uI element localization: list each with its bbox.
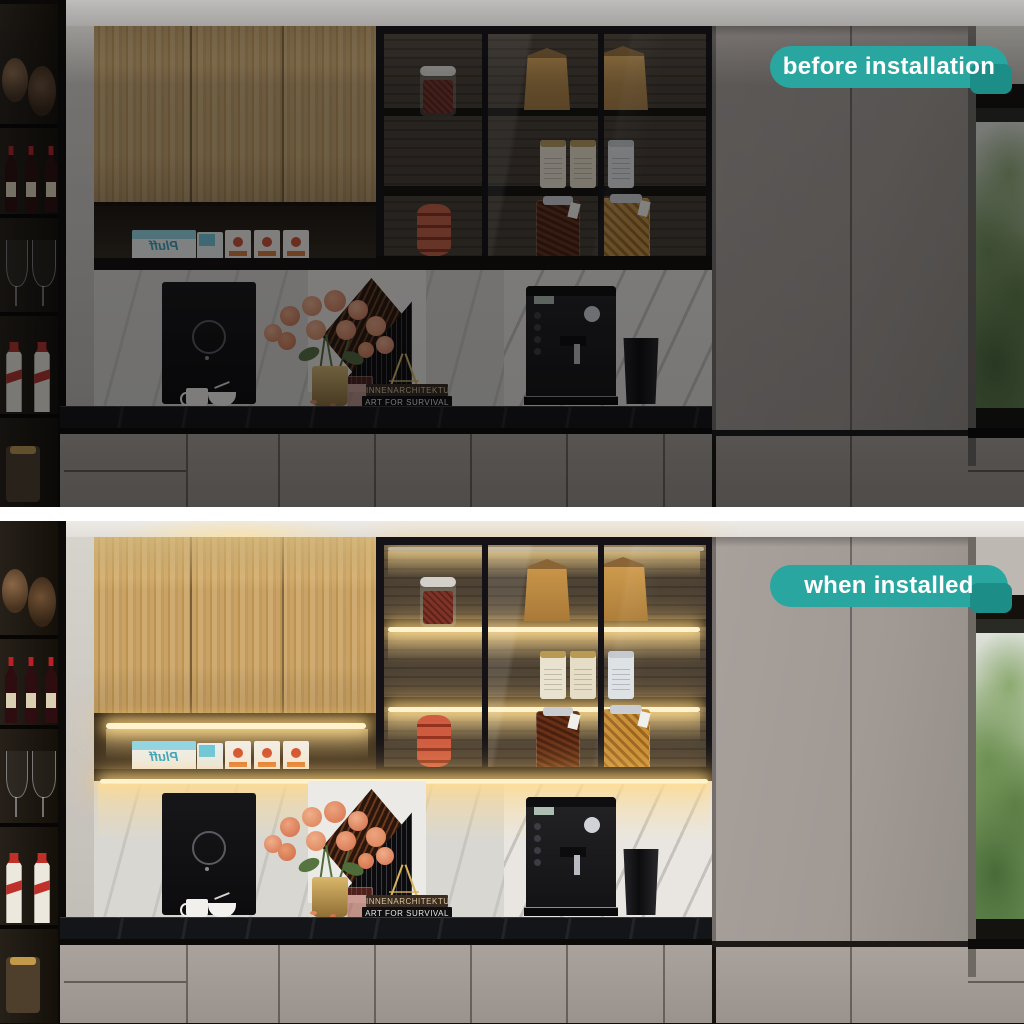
candy-jar [420, 581, 456, 627]
tomato-graphic [262, 237, 272, 247]
before-panel: Pluff [0, 0, 1024, 507]
lower-cabinet-seam [186, 945, 188, 1023]
rose [348, 300, 368, 320]
window-sill [968, 428, 1024, 438]
flower-leaves [341, 349, 366, 368]
baijiu-bottle [31, 342, 53, 412]
black-tumbler [622, 849, 660, 915]
lower-cabinet-seam [278, 945, 280, 1023]
paper-bag [524, 48, 570, 110]
canister [540, 140, 566, 188]
unit-shelf-board [376, 108, 712, 116]
tomato-box [254, 741, 280, 771]
wine-label [46, 182, 56, 197]
drawer-line [968, 470, 1024, 472]
rose [278, 332, 296, 350]
after-panel: Pluff [0, 521, 1024, 1024]
machine-button [534, 336, 541, 343]
display-unit-frame [376, 537, 384, 781]
window-glass-foliage [976, 619, 1024, 919]
baijiu-bottle [3, 342, 25, 412]
wine-bottle [3, 146, 19, 212]
rose [324, 801, 346, 823]
storage-jar [6, 957, 40, 1013]
tall-cabinet-bottom-band [712, 430, 968, 436]
pyramid-base [383, 402, 425, 404]
flower-vase [312, 877, 348, 917]
window-roller-band [976, 619, 1024, 633]
machine-button [534, 823, 541, 830]
baijiu-label [28, 368, 56, 385]
bowl [208, 392, 236, 406]
wine-glass [32, 240, 56, 287]
cabinet-door-seam [282, 537, 284, 717]
lower-cabinets [60, 434, 1024, 507]
canister-label [544, 154, 562, 182]
candy-jar [420, 70, 456, 116]
tomato-box-band [287, 762, 305, 767]
window-roller-band [976, 108, 1024, 122]
book-title: INNENARCHITEKTUR [366, 385, 448, 396]
jar-tag [637, 200, 650, 217]
gold-pyramid-ornament [383, 350, 425, 406]
wine-shelf [0, 414, 58, 418]
backsplash-marble-dark [504, 270, 714, 410]
counter-front-shadow [60, 428, 1024, 435]
machine-button [534, 847, 541, 854]
lower-cabinet-seam [663, 434, 665, 507]
panel-divider [0, 507, 1024, 521]
lower-cabinets [60, 945, 1024, 1023]
rose [306, 320, 326, 340]
lower-cabinet-seam [712, 434, 716, 507]
jar-tag [567, 202, 580, 219]
machine-button [534, 324, 541, 331]
rose [280, 817, 300, 837]
serving-board [162, 282, 256, 404]
milk-box-band [132, 230, 196, 239]
wine-shelf [0, 124, 58, 128]
rose [264, 324, 282, 342]
tomato-box-band [258, 251, 276, 256]
glass-cup [347, 376, 373, 408]
wine-glass-stem [42, 797, 44, 817]
unit-shelf-board [376, 186, 712, 196]
machine-button [534, 312, 541, 319]
flower-vase [312, 366, 348, 406]
decor-ball [28, 66, 56, 116]
canister-lid [608, 140, 634, 147]
countertop [60, 406, 712, 429]
wine-shelf [0, 925, 58, 929]
rose [358, 853, 374, 869]
cabinet-door-seam [190, 537, 192, 717]
wine-label [6, 693, 16, 708]
drawer-line [64, 981, 186, 983]
machine-group-head [560, 847, 586, 857]
milk-box: Pluff [132, 230, 196, 260]
wine-bottle [23, 146, 39, 212]
mug-handle [180, 903, 192, 917]
tomato-box [283, 741, 309, 771]
tall-cabinet-top-shadow [712, 26, 968, 36]
machine-portafilter [574, 344, 580, 364]
display-unit-frame [482, 26, 488, 270]
board-dot [205, 867, 209, 871]
wood-cabinet-bottom-edge [94, 202, 378, 207]
wine-shelf [0, 214, 58, 218]
wall-art-bronze [322, 278, 412, 384]
tall-cabinet-left-edge [712, 26, 716, 436]
unit-bottom-board [376, 256, 714, 270]
decor-ball [2, 569, 28, 613]
machine-drip-tray [524, 396, 618, 405]
milk-box-label: Pluff [134, 749, 194, 769]
tomato-box-band [229, 762, 247, 767]
rose [336, 831, 356, 851]
wine-shelf [0, 312, 58, 316]
wall-panel [66, 537, 94, 929]
rose [306, 831, 326, 851]
lower-cabinet-seam [850, 945, 852, 1023]
machine-dial [584, 306, 600, 322]
canister-label [574, 154, 592, 182]
tomato-box-band [229, 251, 247, 256]
wine-glass-stem [15, 797, 17, 817]
book-title: INNENARCHITEKTUR [366, 896, 448, 907]
window-bottom-band [976, 919, 1024, 939]
machine-top-vent [526, 797, 616, 807]
flower-stems [332, 339, 350, 389]
jar-lid [610, 194, 642, 203]
wine-glass-stem [42, 286, 44, 306]
tall-cabinet-bottom-band [712, 941, 968, 947]
lower-cabinet-seam [470, 434, 472, 507]
display-unit-frame [706, 26, 714, 270]
board-ring [192, 320, 226, 354]
open-shelf [94, 206, 378, 258]
tomato-graphic [262, 748, 272, 758]
infusion-jar [602, 198, 650, 260]
wine-label [6, 182, 16, 197]
rose [302, 296, 322, 316]
pyramid-crossbar [389, 891, 419, 893]
tomato-box-band [258, 762, 276, 767]
tomato-box [225, 741, 251, 771]
lower-cabinet-seam [186, 434, 188, 507]
machine-dial [584, 817, 600, 833]
wine-cabinet-interior [0, 4, 58, 507]
book-stack-top: INNENARCHITEKTUR [366, 384, 448, 396]
before-badge: before installation [770, 46, 1008, 88]
display-unit-frame [376, 26, 384, 270]
rose [348, 811, 368, 831]
lower-cabinet-seam [470, 945, 472, 1023]
mug-handle [180, 392, 192, 406]
wine-label [46, 693, 56, 708]
window-bottom-band [976, 408, 1024, 428]
glass-door-sheen [488, 545, 706, 769]
machine-button [534, 859, 541, 866]
wine-cabinet [0, 0, 66, 507]
wall-art-panel [308, 270, 426, 392]
black-tumbler [622, 338, 660, 404]
jar-lid [10, 957, 36, 965]
rose [366, 827, 386, 847]
machine-screen [534, 807, 554, 815]
rose [366, 316, 386, 336]
decor-ball [28, 577, 56, 627]
machine-group-head [560, 336, 586, 346]
lower-cabinet-seam [374, 434, 376, 507]
window-sill [968, 939, 1024, 949]
ceiling [0, 0, 1024, 27]
storage-jar [6, 446, 40, 502]
coil-vase [417, 204, 451, 256]
machine-button [534, 835, 541, 842]
fallen-petal [310, 400, 317, 404]
coil-vase [417, 715, 451, 767]
display-unit-frame [376, 537, 714, 545]
wine-label [26, 182, 36, 197]
tomato-graphic [233, 748, 243, 758]
wine-bottle [43, 146, 59, 212]
milk-box [197, 743, 223, 771]
flower-leaves [297, 344, 322, 364]
jar-lid [420, 66, 456, 76]
infusion-jar [536, 200, 580, 260]
jar-contents [423, 80, 453, 113]
coffee-machine [526, 797, 616, 915]
display-unit-frame [376, 26, 714, 34]
canister [570, 140, 596, 188]
tall-cabinet-left-edge [712, 537, 716, 947]
flower-leaves [297, 855, 322, 875]
wall-art-stripes [322, 278, 412, 384]
cabinet-door-seam [190, 26, 192, 206]
machine-top-vent [526, 286, 616, 296]
display-unit-back [382, 32, 706, 266]
lower-cabinet-seam [566, 945, 568, 1023]
rose [280, 306, 300, 326]
machine-button [534, 348, 541, 355]
milk-box [197, 232, 223, 260]
pyramid-crossbar [389, 380, 419, 382]
rose [302, 807, 322, 827]
rose [376, 336, 394, 354]
book-title: ART FOR SURVIVAL [362, 397, 452, 408]
book-stack-bottom: ART FOR SURVIVAL [362, 396, 452, 408]
fallen-petal [310, 911, 317, 915]
drawer-line [64, 470, 186, 472]
rose [336, 320, 356, 340]
shelf-board [94, 258, 384, 270]
coffee-machine [526, 286, 616, 404]
mug [186, 388, 208, 406]
lower-cabinet-seam [712, 945, 716, 1023]
wine-glass [32, 751, 56, 798]
serving-board [162, 793, 256, 915]
flower-bouquet [258, 290, 400, 408]
book-stack-top: INNENARCHITEKTUR [366, 895, 448, 907]
countertop [60, 917, 712, 940]
milk-box-band [199, 234, 215, 246]
tall-cabinet-top-shadow [712, 537, 968, 547]
paper-bag [598, 46, 648, 110]
drawer-line [968, 981, 1024, 983]
wine-shelf [0, 725, 58, 729]
jar-lid [543, 196, 573, 205]
lower-cabinet-seam [278, 434, 280, 507]
canister-label [612, 154, 630, 182]
machine-screen [534, 296, 554, 304]
flower-stems [325, 334, 337, 389]
spoon [214, 381, 230, 389]
lower-cabinet-seam [663, 945, 665, 1023]
rose [324, 290, 346, 312]
machine-drip-tray [524, 907, 618, 916]
glass-door-sheen [488, 34, 706, 258]
lower-cabinet-seam [850, 434, 852, 507]
board-dot [205, 356, 209, 360]
lower-cabinet-seam [374, 945, 376, 1023]
tomato-box-band [287, 251, 305, 256]
ceiling [0, 521, 1024, 538]
tomato-graphic [291, 237, 301, 247]
wine-cabinet [0, 521, 66, 1023]
tomato-graphic [291, 748, 301, 758]
jar-contents [423, 591, 453, 624]
tomato-box [225, 230, 251, 260]
milk-box-band [199, 745, 215, 757]
flower-stems [316, 338, 325, 390]
machine-portafilter [574, 855, 580, 875]
after-badge: when installed [770, 565, 1008, 607]
window-glass-foliage [976, 108, 1024, 408]
pyramid-edge [382, 353, 403, 406]
wine-label [26, 693, 36, 708]
wine-glass-stem [15, 286, 17, 306]
rose [278, 843, 296, 861]
backsplash-marble [94, 270, 504, 410]
wall-panel [66, 26, 94, 418]
tomato-box [254, 230, 280, 260]
pyramid-edge [404, 353, 425, 406]
wine-shelf [0, 823, 58, 827]
wine-shelf [0, 635, 58, 639]
wine-cabinet-frame [58, 0, 66, 507]
canister-lid [570, 140, 596, 147]
cabinet-door-seam [282, 26, 284, 206]
tomato-graphic [233, 237, 243, 247]
board-ring [192, 831, 226, 865]
wine-glass [6, 240, 28, 287]
baijiu-label [0, 368, 28, 385]
jar-lid [420, 577, 456, 587]
before-badge-label: before installation [783, 53, 995, 81]
milk-box-label: Pluff [134, 238, 194, 258]
tomato-box [283, 230, 309, 260]
under-cabinet-led-strip [106, 723, 366, 729]
fallen-petal [330, 403, 336, 407]
book-tray [358, 408, 456, 412]
milk-box: Pluff [132, 741, 196, 771]
lower-cabinet-seam [566, 434, 568, 507]
glass-door-frame [598, 26, 604, 270]
rose [358, 342, 374, 358]
wine-glass [6, 751, 28, 798]
canister [608, 140, 634, 188]
after-badge-label: when installed [804, 572, 974, 600]
wood-upper-cabinet [94, 26, 378, 206]
jar-lid [10, 446, 36, 454]
canister-lid [540, 140, 566, 147]
decor-ball [2, 58, 28, 102]
wood-upper-cabinet [94, 537, 378, 717]
